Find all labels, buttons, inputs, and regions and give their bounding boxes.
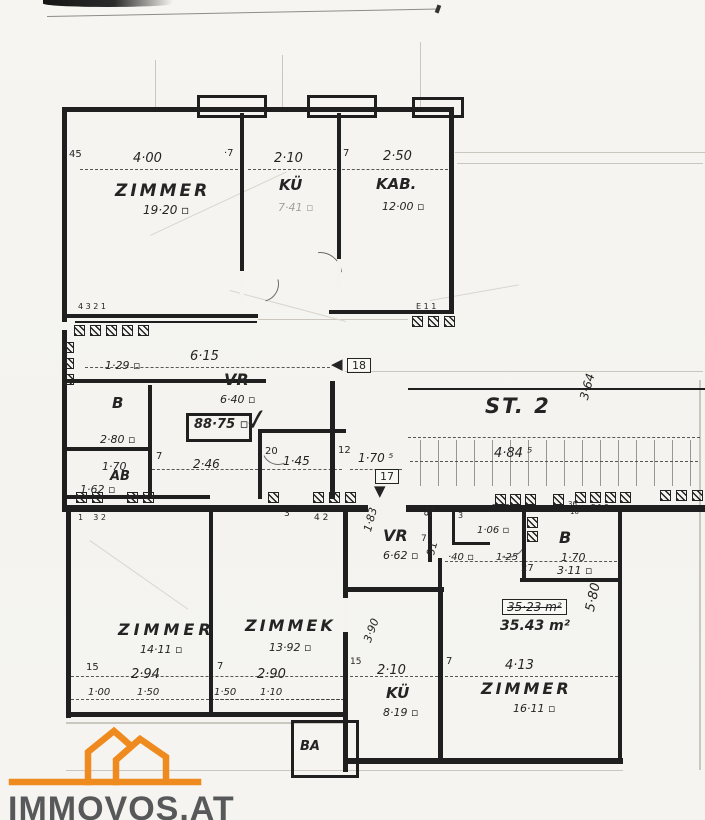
wall-segment [408,388,705,390]
window-hatch-mark [590,492,601,503]
window-hatch-mark [127,492,138,503]
wall-segment [62,314,258,318]
window-hatch-mark [605,492,616,503]
outlined-block [197,95,267,118]
immovos-logo: IMMOVOS.AT [6,722,216,820]
wall-segment [258,429,262,499]
scan-smudge [43,0,173,7]
dim-wall-15b: 15 [350,658,361,667]
room-label-zimmer-lowerright: ZIMMER [481,681,572,697]
note-e12a: E 1 2 [492,504,510,511]
scan-artifact-line [457,163,703,164]
window-hatch-mark [106,325,117,336]
dim-1-70b: 1·70 [561,552,586,563]
door-opening [343,598,348,632]
wall-segment [66,712,346,717]
dim-2-94: 2·94 [131,668,160,681]
area-7-41: 7·41 ▫ [278,202,313,213]
dim-1-50a: 1·50 [137,688,159,698]
arrow-down-icon: ▼ [374,484,386,499]
note-36: 36 [568,501,577,508]
area-35-23-old: 35·23 m² [502,599,567,615]
area-16-11: 16·11 ▫ [513,703,555,714]
wall-segment [618,512,622,764]
scan-artifact-line [258,319,408,320]
wall-segment [449,112,454,311]
note-e12b: E 1 2 [591,504,609,511]
area-12-00: 12·00 ▫ [382,201,424,212]
wall-segment [520,578,622,582]
window-hatch-mark [525,494,536,505]
room-label-kab: KAB. [376,177,416,192]
outlined-block [412,97,464,118]
stair-tread-line [600,440,601,486]
window-hatch-mark [313,492,324,503]
note-e11: E 1 1 [416,303,436,311]
dimension-line [342,169,448,170]
note-3b: 3 [458,512,463,520]
room-label-vr-top: VR [224,372,249,388]
dim-2-10b: 2·10 [377,664,406,677]
dim-85: 85 [424,504,437,519]
dim-wall-45: 45 [69,150,82,160]
window-hatch-mark [63,358,74,369]
door-opening [337,261,341,289]
stair-tread-line [690,440,691,486]
room-label-b-top: B [112,396,123,411]
arrow-left-icon: ◀ [331,357,343,372]
wall-segment [452,512,455,542]
window-hatch-mark [63,342,74,353]
window-hatch-mark [553,494,564,505]
window-hatch-mark [143,492,154,503]
wall-segment [343,758,623,764]
wall-segment [62,330,67,508]
room-label-b-lower: B [559,530,571,546]
door-opening [240,273,244,303]
room-label-kue-top: KÜ [279,178,302,193]
area-19-20: 19·20 ▫ [143,204,189,216]
dim-1-45: 1·45 [283,455,310,467]
dim-1-00: 1·00 [88,688,110,698]
area-1-62: 1·62 ▫ [80,484,115,495]
note-1-32: 1 3 2 [78,514,106,522]
dim-40: ·40 ▫ [448,553,474,563]
window-hatch-mark [444,316,455,327]
window-hatch-mark [428,316,439,327]
stair-tread-line [564,440,565,486]
area-1-29: 1·29 ▫ [105,360,140,371]
dim-91: 91 [425,540,439,556]
dimension-line [80,169,238,170]
room-label-ab: AB [110,470,130,483]
window-hatch-mark [692,490,703,501]
wall-segment [452,542,490,545]
window-hatch-mark [138,325,149,336]
window-hatch-mark [412,316,423,327]
note-10: 10 [570,509,579,516]
scan-artifact-line [47,8,439,17]
wall-segment [66,512,71,718]
wall-segment [62,107,67,322]
room-label-vr-lower: VR [383,528,408,544]
dim-1-50b: 1·50 [214,688,236,698]
window-hatch-mark [510,494,521,505]
stair-tread-line [672,440,673,486]
dim-2-46: 2·46 [193,458,220,470]
scan-artifact-line [345,371,703,372]
window-hatch-mark [74,325,85,336]
wall-segment [75,321,257,323]
dim-2-10: 2·10 [274,152,303,165]
dimension-line [215,699,345,700]
wall-segment [209,512,213,715]
dim-1-70-5: 1·70 ⁵ [358,452,393,464]
dim-1-10: 1·10 [260,688,282,698]
dim-20: 20 [265,447,278,457]
window-hatch-mark [345,492,356,503]
dim-4-00: 4·00 [133,152,162,165]
dim-5-80: 5·80 [584,582,603,613]
area-2-80: 2·80 ▫ [100,434,135,445]
note-4321: 4 3 2 1 [78,303,106,311]
window-hatch-mark [122,325,133,336]
dim-27: 27 [521,564,534,574]
dimension-line [410,461,698,462]
stair-tread-line [618,440,619,486]
stair-tread-line [582,440,583,486]
room-label-zimmer-top: ZIMMER [115,183,210,200]
floor-plan-scan: 454·00·72·1072·50ZIMMER19·20 ▫KÜ7·41 ▫KA… [0,0,705,820]
wall-segment [337,113,341,259]
stair-tread-line [546,440,547,486]
stairwell-label: ST. 2 [485,396,551,417]
stair-tread-line [438,440,439,486]
outlined-block [307,95,377,118]
wall-segment [330,381,335,499]
note-4-2: 4 2 [314,514,328,523]
dim-12: 12 [338,446,351,456]
window-hatch-mark [527,531,538,542]
area-35-43: 35.43 m² [500,619,570,633]
window-hatch-mark [527,517,538,528]
dim-2-50: 2·50 [383,150,412,163]
dimension-line [248,169,336,170]
scan-artifact-line [699,380,701,770]
window-hatch-mark [329,492,340,503]
wall-segment [438,590,443,762]
dim-4-13: 4·13 [505,659,534,672]
check-mark: ✓ [242,405,271,438]
stair-tread-line [474,440,475,486]
dim-1-06: 1·06 ▫ [477,526,509,536]
wall-segment [343,587,444,592]
scan-artifact-mark [435,5,441,14]
room-label-ba: BA [300,740,320,753]
dim-wall-7a: ·7 [224,149,234,159]
dim-wall-7f: 7 [446,657,452,667]
window-hatch-mark [63,374,74,385]
area-6-62: 6·62 ▫ [383,550,418,561]
window-hatch-mark [268,492,279,503]
wall-segment [62,447,152,451]
room-label-zimmer-lowerleft: ZIMMER [118,622,215,638]
dim-wall-7c: 7 [156,452,162,462]
dim-6-15: 6·15 [190,350,219,363]
stair-tread-line [456,440,457,486]
stair-tread-line [492,440,493,486]
area-14-11: 14·11 ▫ [140,644,182,655]
dimension-line [66,676,343,677]
scan-artifact-line [455,152,705,153]
window-hatch-mark [660,490,671,501]
total-area-88-75: 88·75 ▫ [194,418,248,431]
pencil-scribble [89,540,188,610]
area-13-92: 13·92 ▫ [269,642,311,653]
dim-2-90: 2·90 [257,668,286,681]
area-3-11: 3·11 ▫ [557,565,592,576]
stair-tread-line [636,440,637,486]
dim-1-25: 1·25 [496,553,518,563]
room-label-zimmek: ZIMMEK [245,618,336,634]
wall-segment [240,113,244,271]
pencil-scribble [430,284,519,301]
dim-3-64: 3·64 [578,372,597,401]
wall-segment [438,558,442,590]
stair-tread-line [654,440,655,486]
wall-segment [148,385,152,499]
dim-3-90: 3·90 [362,617,381,644]
area-8-19: 8·19 ▫ [383,707,418,718]
window-hatch-mark [676,490,687,501]
stair-tread-line [420,440,421,486]
window-hatch-mark [620,492,631,503]
dimension-line [408,437,700,438]
window-hatch-mark [90,325,101,336]
dim-wall-15a: 15 [86,663,99,673]
dim-wall-7e: 7 [217,662,223,672]
note-3a: 3 [284,510,290,519]
scan-artifact-line [282,55,283,107]
logo-text: IMMOVOS.AT [8,790,235,820]
dim-wall-7b: 7 [343,149,349,159]
door-swing-arc [289,243,351,305]
door-marker-18: 18 [347,358,371,373]
room-label-kue-lower: KÜ [386,686,409,701]
dim-4-84-5: 4·84 ⁵ [494,447,532,460]
scan-artifact-line [155,60,156,108]
